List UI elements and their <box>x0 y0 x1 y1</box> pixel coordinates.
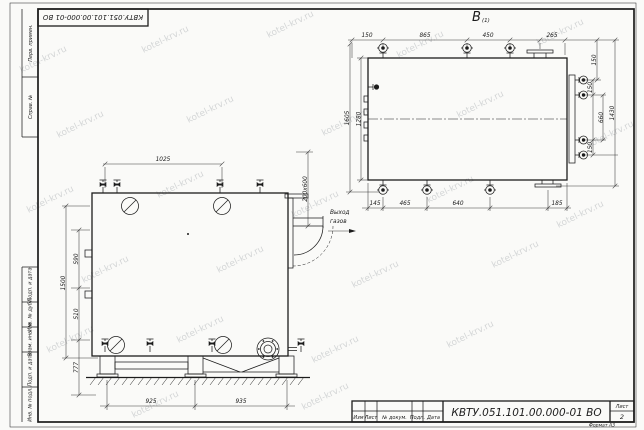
dim-label: 777 <box>74 362 80 373</box>
dim-label: 660 <box>599 112 605 123</box>
flange-stub-top <box>527 50 553 58</box>
dim-label: 1500 <box>61 275 67 290</box>
flue-label-line1: Выход <box>330 210 350 216</box>
frame-label: Подп. и дата <box>28 352 34 386</box>
front-view: Выход газов 1025 200x600 <box>61 150 356 410</box>
dim-label: 185 <box>551 201 562 207</box>
title-col: Дата <box>426 415 440 421</box>
left-stub <box>85 250 92 257</box>
dim-label: 865 <box>419 33 430 39</box>
valve-icon <box>100 180 107 193</box>
dim-label: 465 <box>399 201 410 207</box>
dim-label: 450 <box>482 33 493 39</box>
frame-label: Инв. № подл. <box>28 387 34 422</box>
dim-label: 510 <box>74 308 80 319</box>
dim-label: 1280 <box>357 111 363 126</box>
valve-icon <box>257 180 264 193</box>
view-b-dimensions: 150 865 450 265 150 1605 1280 <box>345 33 619 211</box>
dim-label: 150 <box>361 33 372 39</box>
valve-icon <box>368 84 379 90</box>
valve-icon <box>217 180 224 193</box>
dim-label: 265 <box>546 33 557 39</box>
front-tank-outline <box>92 193 288 356</box>
frame-margin-labels: Перв. примен. Справ. № Подп. и дата Инв.… <box>28 24 35 422</box>
view-b-label-sub: (1) <box>482 18 490 24</box>
dim-label: 1605 <box>345 110 351 125</box>
frame-label: Справ. № <box>28 95 34 119</box>
title-block: Изм Лист № докум. Подп. Дата КВТУ.051.10… <box>352 401 634 428</box>
valve-icon <box>114 180 121 193</box>
dim-label: 640 <box>452 201 463 207</box>
dim-label: 590 <box>74 253 80 264</box>
title-col: Подп. <box>410 415 425 421</box>
dim-label: 200x600 <box>303 176 309 202</box>
supports <box>97 356 297 377</box>
drawing-canvas: Перв. примен. Справ. № Подп. и дата Инв.… <box>0 0 644 430</box>
top-stamp: КВТУ.051.101.00.000-01 ВО <box>38 9 148 26</box>
sheet-number: 2 <box>620 413 624 421</box>
lug-circles <box>108 198 232 354</box>
frame-label: Перв. примен. <box>28 24 34 62</box>
sheet-border <box>10 3 636 427</box>
drawing-sheet: kotel-krv.ru kotel-krv.ru kotel-krv.ru k… <box>0 0 644 430</box>
dim-label: 150 <box>588 142 594 153</box>
format-label: Формат А3 <box>589 422 615 428</box>
dim-label: 145 <box>369 201 380 207</box>
flue-label-line2: газов <box>330 219 347 225</box>
dim-label: 925 <box>145 399 156 405</box>
frame-label: Взам. инв. № <box>28 323 34 357</box>
view-b: В (1) <box>345 10 619 211</box>
dim-label: 150 <box>592 54 598 65</box>
dim-label: 1430 <box>610 105 616 120</box>
top-stamp-doc-number: КВТУ.051.101.00.000-01 ВО <box>42 13 143 21</box>
sheet-label: Лист <box>615 404 630 410</box>
flue-arrow-icon <box>328 229 356 233</box>
flue-outlet <box>285 194 333 268</box>
dim-label: 935 <box>235 399 246 405</box>
burner-flange <box>257 338 279 360</box>
left-stub <box>85 291 92 298</box>
dim-label: 1025 <box>156 157 171 163</box>
center-mark <box>187 233 189 235</box>
title-col: Лист <box>364 415 379 421</box>
right-bracket <box>569 75 575 163</box>
valve-icon <box>298 339 305 352</box>
frame-label: Подп. и дата <box>28 267 34 301</box>
valve-icon <box>147 339 154 352</box>
view-b-label: В <box>472 10 481 25</box>
valve-icon <box>484 180 496 194</box>
right-bottom-stub <box>288 348 297 351</box>
valve-icon <box>421 180 433 194</box>
doc-number: КВТУ.051.101.00.000-01 ВО <box>451 407 601 419</box>
title-col: № докум. <box>381 415 407 421</box>
dim-label: 150 <box>588 82 594 93</box>
front-dimensions: 1025 200x600 1500 590 510 777 <box>61 150 313 410</box>
title-col: Изм <box>353 415 363 421</box>
ground <box>86 377 310 385</box>
